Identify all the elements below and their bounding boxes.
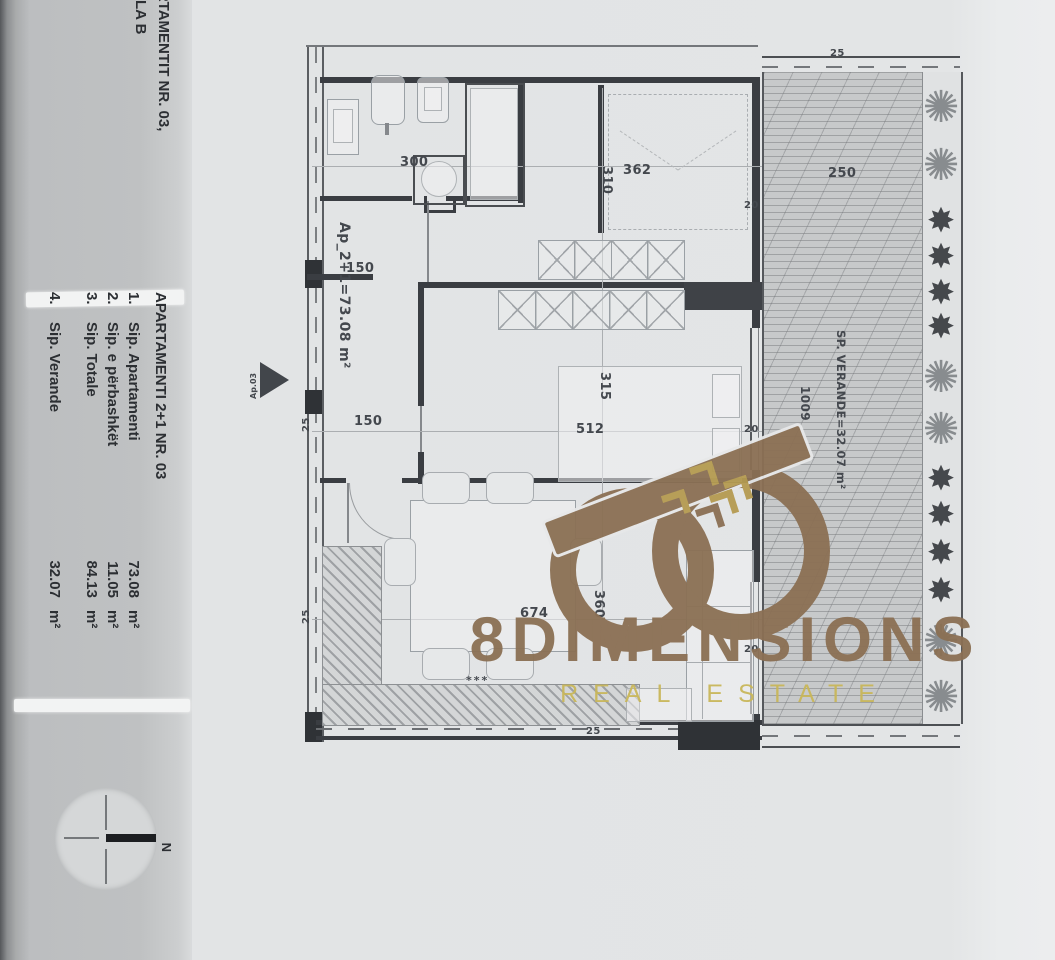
plant-star-icon: ✸ <box>922 204 960 238</box>
plant-bush-icon: ✺ <box>922 676 960 720</box>
dim-bedroom1-depth: 310 <box>599 166 614 194</box>
north-arrow-icon <box>106 834 156 842</box>
row-label: Sip. e përbashkët <box>102 322 123 534</box>
plant-star-icon: ✸ <box>922 574 960 608</box>
dim-wall-20: 20 <box>744 644 759 655</box>
plant-star-icon: ✸ <box>922 240 960 274</box>
dim-wall-25: 25 <box>301 417 312 432</box>
row-label: Sip. Verande <box>44 322 65 534</box>
sofa-cushion-line <box>702 551 703 719</box>
plant-bush-icon: ✺ <box>922 408 960 452</box>
dim-bedroom2-depth: 315 <box>597 372 612 400</box>
dim-living-depth: 360 <box>591 590 606 618</box>
row-unit: m² <box>123 598 144 654</box>
wall-bedroom1-left <box>598 85 604 233</box>
chevron-icon <box>661 489 691 519</box>
toilet-drain <box>385 123 389 135</box>
bed-double <box>608 94 748 230</box>
row-number: 3. <box>81 292 102 322</box>
chair <box>486 648 534 680</box>
area-table-row: 4. Sip. Verande 32.07 m² <box>44 292 65 712</box>
pillow <box>712 374 740 418</box>
chair <box>486 472 534 504</box>
row-value: 73.08 <box>123 534 144 598</box>
shower-tray <box>470 88 518 200</box>
plant-star-icon: ✸ <box>922 536 960 570</box>
dim-wall-20: 20 <box>744 200 759 211</box>
dim-bath-width: 300 <box>400 155 428 170</box>
sofa-cushion-line <box>687 662 751 663</box>
row-unit: m² <box>102 598 123 654</box>
dining-table <box>410 500 576 652</box>
plant-star-icon: ✸ <box>922 498 960 532</box>
plant-bush-icon: ✺ <box>922 620 960 664</box>
plan-boundary-line <box>306 45 758 47</box>
door-leaf-bedroom2 <box>420 406 422 452</box>
sidebar-divider-bottom <box>14 699 190 712</box>
chair <box>422 472 470 504</box>
chair <box>422 648 470 680</box>
plant-star-icon: ✸ <box>922 462 960 496</box>
row-number: 1. <box>123 292 144 322</box>
pillow <box>712 428 740 472</box>
dim-veranda-length: 1009 <box>798 386 812 421</box>
dim-living-width: 674 <box>520 606 548 621</box>
planter-plants: ✺✺✸✸✸✸✺✺✸✸✸✸✺✺ <box>922 72 960 724</box>
veranda-area-label: SP. VERANDE=32.07 m² <box>834 330 848 490</box>
compass-crosshair <box>105 849 107 884</box>
row-unit: m² <box>44 598 65 654</box>
wall-bedroom2-top <box>418 282 684 288</box>
apartment-area-label: Ap_2+1=73.08 m² <box>336 222 352 369</box>
row-unit: m² <box>81 598 102 654</box>
door-swing-arc <box>349 483 404 540</box>
wall-living-top <box>320 478 346 483</box>
sofa <box>686 550 754 722</box>
structural-column <box>678 720 760 750</box>
dim-wall-25: 25 <box>301 609 312 624</box>
door-leaf-living <box>347 483 349 543</box>
plant-star-icon: ✸ <box>922 276 960 310</box>
wardrobe-unit <box>611 240 649 280</box>
dim-wall-25: 25 <box>586 726 601 737</box>
plant-bush-icon: ✺ <box>922 86 960 130</box>
tv-lowboard <box>626 688 692 722</box>
sink-basin <box>333 109 353 143</box>
area-table-header: APARTAMENTI 2+1 NR. 03 <box>148 292 172 712</box>
plant-bush-icon: ✺ <box>922 356 960 400</box>
wall-segment <box>305 390 322 414</box>
row-value: 11.05 <box>102 534 123 598</box>
sidebar-title: ARTAMENTIT NR. 03, ALLA B <box>129 0 175 131</box>
wardrobe-unit <box>498 290 537 330</box>
row-number: 2. <box>102 292 123 322</box>
dim-hall-width: 150 <box>354 414 382 429</box>
area-table-row: 2. Sip. e përbashkët 11.05 m² <box>102 292 123 712</box>
row-number: 4. <box>44 292 65 322</box>
dim-veranda-width: 250 <box>828 166 856 181</box>
sofa-cushion-line <box>687 606 751 607</box>
chair <box>570 538 602 586</box>
sidebar-title-line2: ALLA B <box>129 0 152 131</box>
compass-crosshair <box>105 795 107 830</box>
dim-bedroom1-width: 362 <box>623 163 651 178</box>
wardrobe-unit <box>574 240 612 280</box>
row-label: Sip. Totale <box>81 322 102 534</box>
row-value: 84.13 <box>81 534 102 598</box>
chevron-icon <box>709 489 739 519</box>
kitchen-counter <box>322 684 640 726</box>
wall-bathroom-bottom <box>320 196 412 201</box>
dim-wall-20: 20 <box>744 424 759 435</box>
wardrobe-unit <box>647 240 685 280</box>
row-label: Sip. Apartamenti <box>123 322 144 534</box>
wardrobe-unit <box>538 240 576 280</box>
area-table-row: 3. Sip. Totale 84.13 m² <box>81 292 102 712</box>
decor-marks: *** <box>466 674 489 687</box>
plant-star-icon: ✸ <box>922 310 960 344</box>
veranda-wall-bottom <box>762 724 960 748</box>
area-table-row: 1. Sip. Apartamenti 73.08 m² <box>123 292 144 712</box>
plant-bush-icon: ✺ <box>922 144 960 188</box>
wardrobe-unit <box>609 290 648 330</box>
dim-bedroom2-width: 512 <box>576 422 604 437</box>
compass-crosshair <box>64 837 99 839</box>
dim-wall-25: 25 <box>830 48 845 59</box>
door-leaf-bathroom <box>427 201 429 287</box>
row-value: 32.07 <box>44 534 65 598</box>
wardrobe-unit <box>646 290 685 330</box>
chevron-icon <box>695 503 725 533</box>
entrance-label: Ap.03 <box>249 373 258 399</box>
wardrobe-unit <box>535 290 574 330</box>
sidebar-title-line1: ARTAMENTIT NR. 03, <box>152 0 175 131</box>
wall-bedroom2-left <box>418 288 424 406</box>
structural-column <box>684 282 764 310</box>
chair <box>384 538 416 586</box>
wardrobe-unit <box>572 290 611 330</box>
bidet-basin <box>424 87 442 111</box>
toilet-fixture <box>371 75 405 125</box>
north-label: N <box>159 843 174 852</box>
sidebar-area-table: APARTAMENTI 2+1 NR. 03 1. Sip. Apartamen… <box>44 292 172 712</box>
scanned-floor-plan-page: ARTAMENTIT NR. 03, ALLA B APARTAMENTI 2+… <box>0 0 1055 960</box>
entrance-arrow-icon <box>260 362 289 398</box>
